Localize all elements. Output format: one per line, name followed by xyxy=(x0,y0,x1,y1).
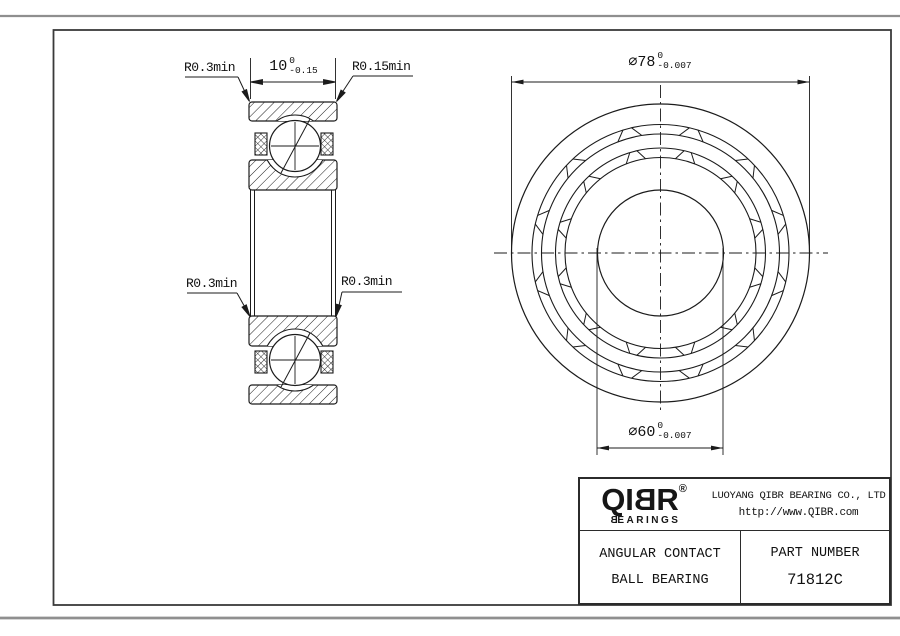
bore-lines xyxy=(251,190,336,316)
radius-label-bottom-left: R0.3min xyxy=(186,276,237,291)
logo-sub-flipped-b: B xyxy=(608,515,618,526)
radius-label-top-right: R0.15min xyxy=(352,59,410,74)
width-dimension-text: 10 0 -0.15 xyxy=(251,56,336,77)
drawing-sheet: R0.3min R0.15min R0.3min R0.3min 10 0 -0… xyxy=(0,0,900,636)
product-type-cell: ANGULAR CONTACT BALL BEARING xyxy=(580,531,741,603)
company-info: LUOYANG QIBR BEARING CO., LTD http://www… xyxy=(708,479,889,530)
part-number-cell: PART NUMBER 71812C xyxy=(741,531,889,603)
company-logo: QIBR® BEARINGS xyxy=(580,479,708,530)
part-number-label: PART NUMBER xyxy=(770,546,859,561)
title-block: QIBR® BEARINGS LUOYANG QIBR BEARING CO.,… xyxy=(578,477,891,605)
bore-value: ∅60 xyxy=(628,422,655,441)
bore-dimension-text: ∅60 0 -0.007 xyxy=(605,421,715,442)
logo-text-pre: QI xyxy=(601,486,634,514)
cage-section xyxy=(321,133,333,155)
od-dimension-text: ∅78 0 -0.007 xyxy=(605,51,715,72)
radius-label-top-left: R0.3min xyxy=(184,60,235,75)
part-number-value: 71812C xyxy=(787,571,843,589)
width-tol-lower: -0.15 xyxy=(289,66,318,76)
section-bottom xyxy=(249,316,337,404)
logo-wordmark: QIBR® xyxy=(601,486,687,514)
od-tol-lower: -0.007 xyxy=(657,61,691,71)
cross-section-view xyxy=(185,58,413,404)
title-block-detail-row: ANGULAR CONTACT BALL BEARING PART NUMBER… xyxy=(580,531,889,603)
logo-flipped-b: B xyxy=(634,486,656,514)
section-top xyxy=(249,102,337,190)
company-website: http://www.QIBR.com xyxy=(739,507,859,519)
company-name: LUOYANG QIBR BEARING CO., LTD xyxy=(711,490,885,502)
front-view xyxy=(494,76,828,455)
title-block-header-row: QIBR® BEARINGS LUOYANG QIBR BEARING CO.,… xyxy=(580,479,889,531)
od-value: ∅78 xyxy=(628,52,655,71)
width-value: 10 xyxy=(269,58,287,75)
logo-text-post: R xyxy=(656,486,678,514)
cage-section xyxy=(255,351,267,373)
registered-trademark-icon: ® xyxy=(679,484,687,495)
radius-label-bottom-right: R0.3min xyxy=(341,274,392,289)
product-type-line2: BALL BEARING xyxy=(611,573,708,588)
bore-tol-lower: -0.007 xyxy=(657,431,691,441)
cage-section xyxy=(255,133,267,155)
product-type-line1: ANGULAR CONTACT xyxy=(599,547,721,562)
cage-section xyxy=(321,351,333,373)
